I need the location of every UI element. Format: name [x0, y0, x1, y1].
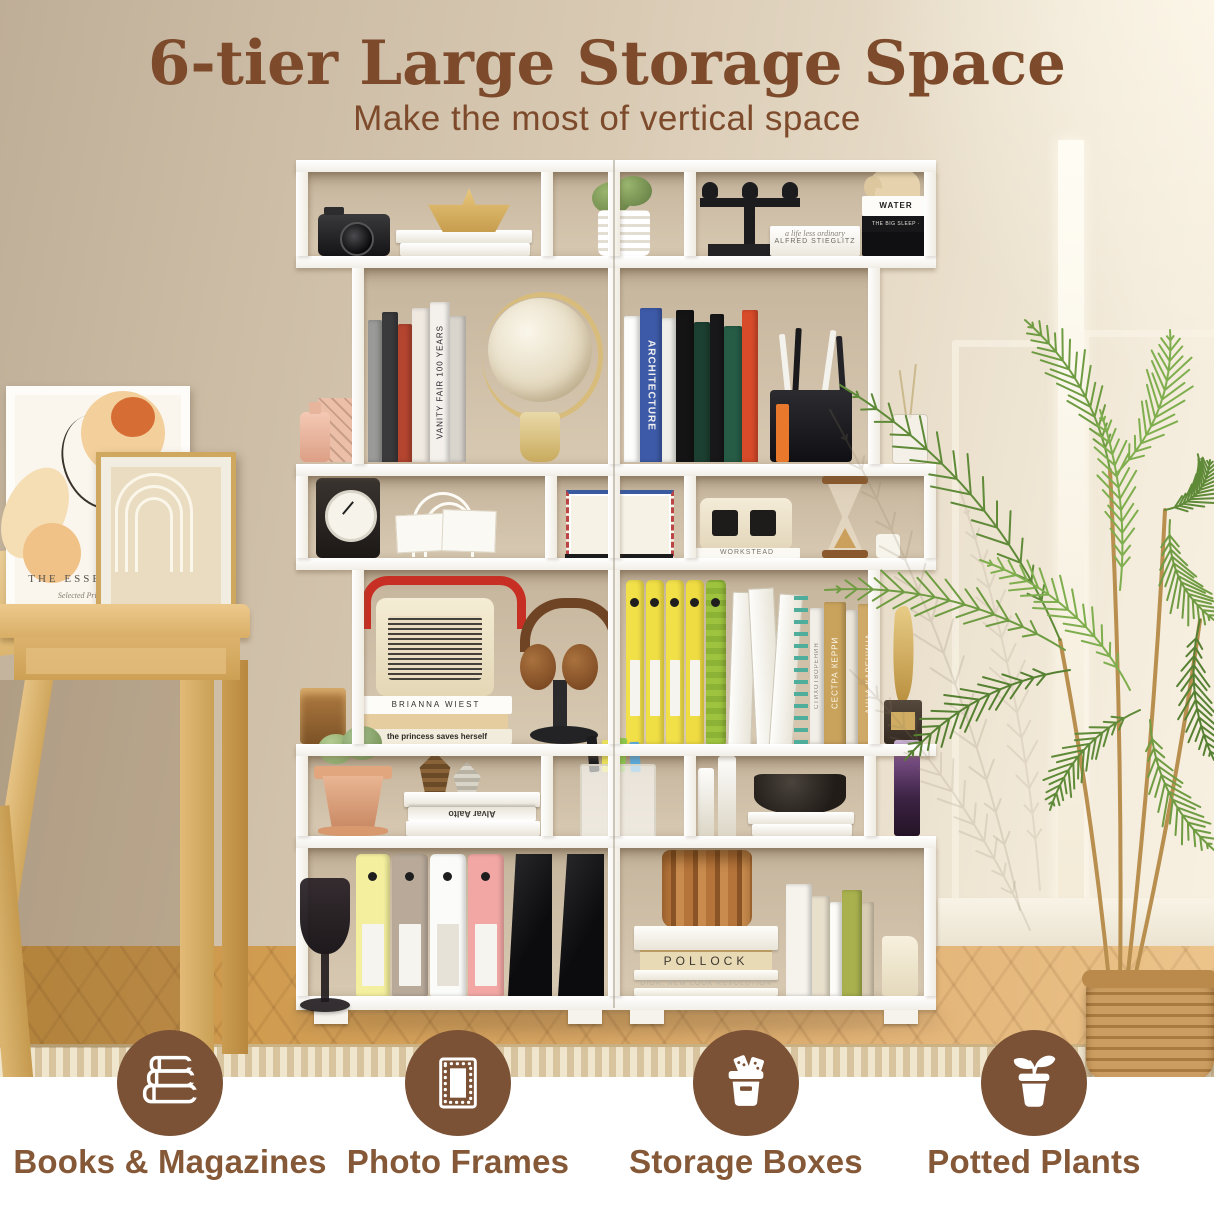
white-pillar-candle — [882, 936, 918, 996]
candelabra-knob — [702, 182, 718, 198]
gold-figurine-trophy — [889, 605, 918, 704]
book-spine — [812, 896, 830, 996]
book-spine: СЕСТРА КЕРРИ — [824, 602, 846, 744]
white-book-stack: a life less ordinary ALFRED STIEGLITZ — [770, 226, 860, 256]
stacked-book — [752, 824, 852, 836]
shelf-board — [296, 464, 936, 476]
books-icon — [138, 1051, 202, 1115]
book-title: СТИХОТВОРЕНИЯ — [810, 608, 824, 744]
features-band: Books & Magazines Photo Frames — [0, 1077, 1214, 1214]
storage-box-icon — [714, 1051, 778, 1115]
book-spine — [624, 316, 640, 462]
shelf-side-panel — [924, 848, 936, 996]
retro-flip-clock — [700, 498, 792, 550]
shelf-side-panel — [924, 172, 936, 256]
shelf-base-board — [296, 996, 936, 1010]
terracotta-pot — [314, 766, 392, 836]
dried-stem — [909, 364, 917, 418]
wicker-basket-planter — [1086, 976, 1214, 1080]
book-title: WATER — [879, 201, 912, 210]
book-spine-princess: the princess saves herself — [362, 729, 512, 744]
book-spine-architecture: ARCHITECTURE — [640, 308, 662, 462]
stand-pole — [553, 680, 567, 730]
white-candlestick — [718, 756, 736, 836]
stacked-book — [406, 821, 540, 836]
page-subtitle: Make the most of vertical space — [0, 99, 1214, 139]
book-spine — [398, 324, 412, 462]
book-spine — [710, 314, 724, 462]
shelf-board — [296, 256, 936, 268]
potted-plant-icon — [1002, 1051, 1066, 1115]
book-spine: СТИХОТВОРЕНИЯ — [810, 608, 824, 744]
orange-highlighter — [776, 404, 789, 462]
wooden-planter — [662, 850, 752, 928]
envelope — [441, 509, 496, 553]
book-spine: THE BIG SLEEP · RAYMOND CHANDLER — [862, 216, 930, 232]
desk-top — [0, 604, 250, 638]
book-spine — [862, 232, 930, 256]
shelf-board — [296, 744, 936, 756]
feature-label: Potted Plants — [850, 1143, 1214, 1181]
horizontal-book-pile: WATER FINANCE THE BIG SLEEP · RAYMOND CH… — [862, 196, 930, 256]
perfume-bottle — [300, 412, 330, 462]
book-spine — [364, 714, 508, 729]
shelf-divider — [541, 756, 553, 836]
teal-file-rack — [794, 596, 808, 744]
shelf-side-panel — [868, 268, 880, 464]
shelf-side-panel — [352, 570, 364, 744]
desk-leg — [222, 660, 248, 1054]
binder-label — [670, 660, 680, 716]
book-title: СЕСТРА КЕРРИ — [824, 602, 846, 744]
photo-frame-icon — [426, 1051, 490, 1115]
white-candlestick — [698, 768, 714, 836]
six-tier-bookshelf: a life less ordinary ALFRED STIEGLITZ WA… — [296, 160, 936, 1026]
globe-base — [520, 412, 560, 462]
book-spine — [450, 316, 466, 462]
book-spine — [724, 326, 742, 462]
book-spine — [862, 902, 874, 996]
shelf-side-panel — [296, 172, 308, 256]
book-title: VANITY FAIR 100 YEARS — [430, 302, 450, 462]
binder-label — [399, 924, 421, 986]
shelf-center-seam — [613, 160, 615, 1008]
book-author: ALFRED STIEGLITZ — [770, 238, 860, 245]
book-spine — [694, 322, 710, 462]
candelabra-stem — [744, 204, 755, 246]
pot-body — [320, 776, 386, 828]
green-book-spine — [842, 890, 862, 996]
glass-bowl — [300, 878, 350, 954]
trophy-base — [884, 700, 922, 744]
hourglass-cap — [822, 476, 868, 484]
airmail-envelopes — [566, 490, 674, 565]
desk-panel — [26, 648, 226, 674]
book-spine-vanity-fair: VANITY FAIR 100 YEARS — [430, 302, 450, 462]
hourglass-cap — [822, 550, 868, 558]
binder-label — [437, 924, 459, 986]
feature-circle — [405, 1030, 511, 1136]
book-spine — [742, 310, 758, 462]
stacked-book — [404, 792, 540, 807]
headphone-earcup — [520, 644, 556, 690]
shelf-divider — [684, 756, 696, 836]
shelf-board — [296, 160, 936, 172]
art-frame-small-arch — [96, 452, 236, 626]
binder-label — [690, 660, 700, 716]
letter-holder — [402, 492, 492, 558]
black-bowl — [754, 774, 846, 814]
book-title: a life less ordinary — [770, 229, 860, 238]
feature-circle — [117, 1030, 223, 1136]
book-spine: WATER FINANCE — [862, 196, 930, 216]
book-title: ARCHITECTURE — [640, 308, 662, 462]
shelf-foot — [568, 1010, 602, 1024]
book-spine — [382, 312, 398, 462]
shelf-foot — [884, 1010, 918, 1024]
book-spine-brianna: BRIANNA WIEST — [360, 696, 512, 714]
shelf-board — [296, 558, 936, 570]
binder-label — [475, 924, 497, 986]
dried-stem — [899, 370, 908, 418]
book-spine-pollock: POLLOCK — [640, 950, 772, 972]
feature-circle — [981, 1030, 1087, 1136]
book-spine — [830, 902, 842, 996]
stacked-book — [400, 243, 530, 256]
binder-label — [650, 660, 660, 716]
book-spine — [368, 320, 382, 462]
shelf-divider — [684, 172, 696, 256]
pot-saucer — [318, 826, 388, 836]
green-binder — [706, 580, 726, 744]
small-white-jar — [876, 534, 900, 558]
stacked-book — [634, 988, 778, 996]
desk-leg — [180, 680, 214, 1054]
binder-label — [362, 924, 384, 986]
book-spine-alvar-aalto: Alvar Aalto — [408, 807, 536, 821]
candelabra-knob — [742, 182, 758, 198]
shelf-foot — [630, 1010, 664, 1024]
headphone-earcup — [562, 644, 598, 690]
binder-label — [630, 660, 640, 716]
book-spine — [786, 884, 812, 996]
shelf-side-panel — [296, 756, 308, 836]
coffee-table-book-stack: POLLOCK DIOR: NEW LOOK REVOLUTION — [634, 926, 778, 996]
radio-grille — [388, 616, 482, 680]
dark-wine-glass — [298, 878, 352, 1018]
table-clock — [316, 478, 380, 558]
feature-circle — [693, 1030, 799, 1136]
stacked-book — [634, 926, 778, 950]
ribbed-vase — [598, 210, 650, 256]
thin-book: WORKSTEAD — [694, 548, 800, 558]
page-title: 6-tier Large Storage Space — [0, 28, 1214, 99]
hourglass — [822, 476, 868, 558]
headphones-on-stand — [516, 598, 604, 744]
shelf-side-panel — [864, 756, 876, 836]
vintage-camera — [318, 214, 390, 256]
book-spine — [412, 308, 430, 462]
product-marketing-image: THE ESSENCE O Selected Prints 190 — [0, 0, 1214, 1214]
book-spine — [846, 610, 858, 744]
candelabra-knob — [782, 182, 798, 198]
stacked-book — [748, 812, 854, 824]
shelf-side-panel — [296, 476, 308, 558]
arch-line — [135, 497, 173, 572]
shelf-side-panel — [868, 570, 880, 744]
glass-vase — [892, 414, 928, 464]
shelf-side-panel — [352, 268, 364, 464]
shelf-divider — [545, 476, 557, 558]
shelf-divider — [541, 172, 553, 256]
stacked-book — [634, 970, 778, 980]
globe — [488, 298, 592, 402]
book-spine-dior: DIOR: NEW LOOK REVOLUTION — [634, 980, 778, 987]
book-spine — [676, 310, 694, 462]
book-spine — [662, 318, 676, 462]
shelf-board — [296, 836, 936, 848]
glass-foot — [300, 998, 350, 1012]
shelf-divider — [684, 476, 696, 558]
shelf-side-panel — [924, 476, 936, 558]
glass-stem — [321, 950, 329, 1002]
